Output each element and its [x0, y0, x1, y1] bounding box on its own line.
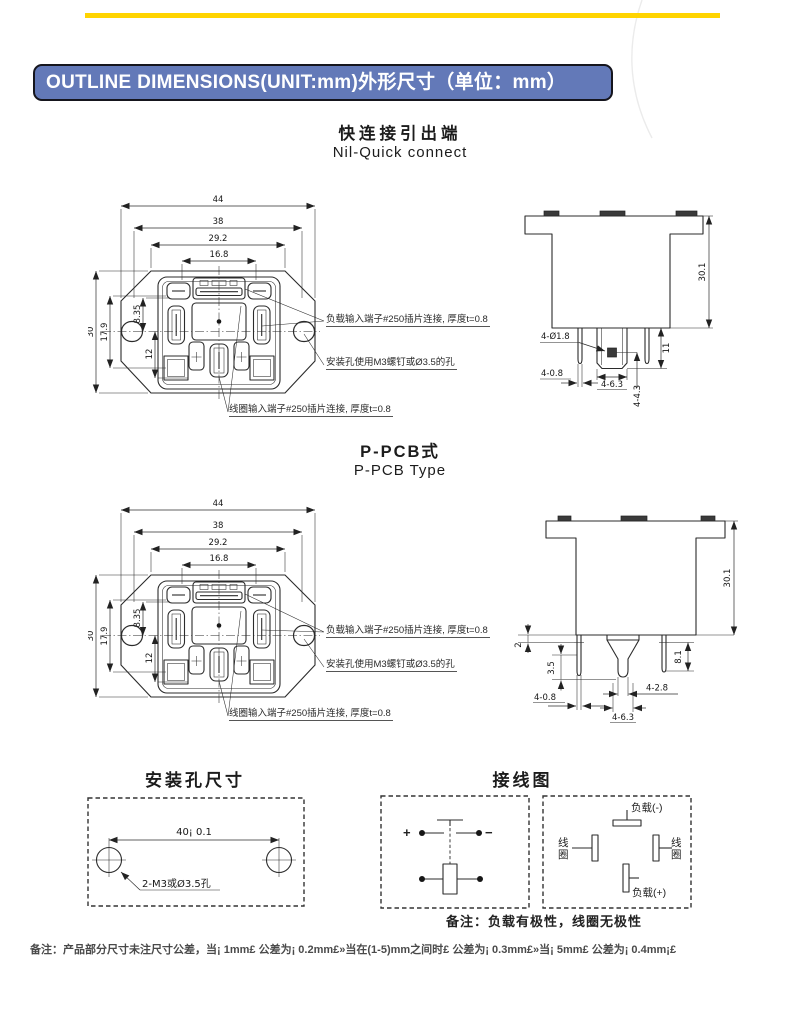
dim-16-8-label: 16.8	[210, 554, 229, 564]
dim-pin08-label: 4-0.8	[534, 693, 556, 703]
dim-30-1-label: 30.1	[698, 263, 708, 282]
coil-right-label: 线圈	[671, 837, 683, 861]
dim-17-9-label: 17.9	[100, 627, 110, 646]
dim-3-5-label: 3.5	[547, 661, 557, 675]
section-header: OUTLINE DIMENSIONS(UNIT:mm)外形尺寸（单位：mm）	[33, 64, 613, 101]
dim-11-label: 11	[662, 343, 672, 354]
top-accent-rule	[85, 13, 720, 18]
dim-44-label: 44	[213, 499, 224, 509]
dim-2-label: 2	[514, 642, 524, 647]
callout-load-terminal-1: 负载输入端子#250插片连接, 厚度t=0.8	[326, 311, 490, 327]
load-neg-label: 负载(-)	[631, 800, 663, 815]
dim-17-9-label: 17.9	[100, 323, 110, 342]
dim-30-1-label: 30.1	[723, 569, 733, 588]
terminal-coil-right	[653, 835, 659, 861]
pcb-front-view-drawing: 44 38 29.2 16.8 30 17.9 8.35 12	[88, 492, 323, 714]
minus-sign: −	[485, 825, 493, 840]
dim-8-35-label: 8.35	[133, 609, 143, 628]
pcb-pin-right	[662, 635, 666, 672]
quick-connect-side-view-drawing: 30.1 11 4-Ø1.8 4-0.8 4-6.3 4-4.3	[497, 196, 717, 408]
dim-8-1-label: 8.1	[674, 650, 684, 664]
wiring-section-title: 接线图	[455, 766, 590, 791]
dim-30-label: 30	[88, 327, 96, 338]
dim-hole-label: 4-Ø1.8	[541, 331, 570, 342]
mount-hole-callout: 2-M3或Ø3.5孔	[142, 878, 211, 890]
section-header-title: OUTLINE DIMENSIONS(UNIT:mm)外形尺寸（单位：mm）	[46, 72, 566, 93]
tolerance-note: 备注：产品部分尺寸未注尺寸公差，当¡ 1mm£ 公差为¡ 0.2mm£»当在(1…	[30, 941, 778, 957]
quick-connect-title-zh: 快连接引出端	[245, 120, 555, 144]
polarity-note: 备注：负载有极性，线圈无极性	[446, 911, 642, 930]
dim-40-0-1-label: 40¡ 0.1	[176, 827, 212, 838]
pcb-title-en: P-PCB Type	[245, 462, 555, 479]
datasheet-page: OUTLINE DIMENSIONS(UNIT:mm)外形尺寸（单位：mm） 快…	[0, 0, 790, 1034]
pcb-title: P-PCB式 P-PCB Type	[245, 438, 555, 479]
mounting-hole-drawing: 40¡ 0.1 2-M3或Ø3.5孔	[85, 788, 310, 913]
load-pos-label: 负载(+)	[632, 885, 666, 900]
dim-12-label: 12	[145, 653, 155, 664]
dim-12-label: 12	[145, 349, 155, 360]
callout-coil-terminal-2: 线圈输入端子#250插片连接, 厚度t=0.8	[229, 705, 393, 721]
dim-30-label: 30	[88, 631, 96, 642]
dim-38-label: 38	[213, 521, 224, 531]
callout-coil-terminal-1: 线圈输入端子#250插片连接, 厚度t=0.8	[229, 401, 393, 417]
terminal-load-neg	[613, 820, 641, 826]
terminal-coil-left	[592, 835, 598, 861]
dim-16-8-label: 16.8	[210, 250, 229, 260]
pcb-title-zh: P-PCB式	[245, 438, 555, 462]
dim-8-35-label: 8.35	[133, 305, 143, 324]
dim-29-2-label: 29.2	[209, 234, 228, 244]
callout-mount-hole-2: 安装孔使用M3螺钉或Ø3.5的孔	[326, 656, 457, 672]
pin-right	[645, 328, 649, 364]
dim-pin28-label: 4-2.8	[646, 684, 668, 694]
dim-29-2-label: 29.2	[209, 538, 228, 548]
dim-tab63-label: 4-6.3	[601, 380, 623, 390]
plus-sign: +	[403, 825, 411, 840]
pcb-pin-left	[577, 635, 581, 676]
quick-connect-title-en: Nil-Quick connect	[245, 144, 555, 161]
dim-tab63-label: 4-6.3	[612, 713, 634, 723]
coil-left-label: 线圈	[558, 837, 570, 861]
pin-left	[578, 328, 582, 364]
dim-44-label: 44	[213, 195, 224, 205]
pcb-side-view-drawing: 30.1 2 3.5 8.1 4-2.8 4-0.8 4-6.3	[488, 498, 743, 750]
tab-hole	[608, 348, 617, 357]
terminal-load-pos	[623, 864, 629, 892]
quick-connect-title: 快连接引出端 Nil-Quick connect	[245, 120, 555, 161]
coil-symbol	[443, 864, 457, 894]
pcb-center-tab	[607, 635, 639, 677]
dim-pos43-label: 4-4.3	[633, 385, 643, 407]
quick-connect-front-view-drawing: 44 38 29.2 16.8 30 17.9 8.35 12	[88, 188, 323, 410]
callout-mount-hole-1: 安装孔使用M3螺钉或Ø3.5的孔	[326, 354, 457, 370]
dim-38-label: 38	[213, 217, 224, 227]
callout-load-terminal-2: 负载输入端子#250插片连接, 厚度t=0.8	[326, 622, 490, 638]
dim-pin08-label: 4-0.8	[541, 369, 563, 379]
